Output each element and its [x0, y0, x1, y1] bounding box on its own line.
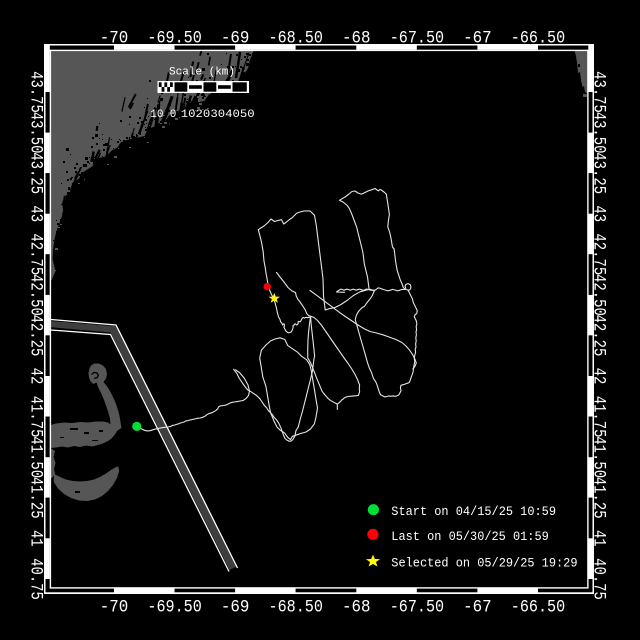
svg-text:41.25: 41.25 [26, 477, 46, 519]
svg-text:42.75: 42.75 [26, 233, 46, 275]
svg-text:41.75: 41.75 [589, 396, 609, 438]
svg-text:43.75: 43.75 [589, 71, 609, 113]
svg-text:-70: -70 [100, 29, 129, 49]
svg-text:40.75: 40.75 [589, 558, 609, 600]
svg-text:42: 42 [589, 368, 609, 385]
svg-text:41: 41 [589, 530, 609, 547]
svg-text:42.50: 42.50 [26, 274, 46, 316]
svg-text:43.75: 43.75 [26, 71, 46, 113]
svg-text:-68.50: -68.50 [269, 29, 323, 49]
svg-text:-69: -69 [221, 598, 250, 618]
svg-text:Scale (km): Scale (km) [169, 67, 235, 79]
svg-text:-69.50: -69.50 [147, 29, 201, 49]
svg-text:-66.50: -66.50 [511, 598, 565, 618]
svg-text:43: 43 [589, 205, 609, 222]
svg-text:43.50: 43.50 [589, 112, 609, 154]
svg-text:-67: -67 [463, 29, 492, 49]
svg-text:-68.50: -68.50 [269, 598, 323, 618]
svg-text:-66.50: -66.50 [511, 29, 565, 49]
svg-text:42.25: 42.25 [589, 315, 609, 357]
svg-text:42.50: 42.50 [589, 274, 609, 316]
svg-text:0: 0 [170, 109, 177, 121]
svg-text:41.50: 41.50 [589, 436, 609, 478]
svg-text:Last on 05/30/25 01:59: Last on 05/30/25 01:59 [391, 529, 549, 544]
svg-text:-67.50: -67.50 [390, 29, 444, 49]
svg-text:43.50: 43.50 [26, 112, 46, 154]
svg-text:10: 10 [150, 109, 163, 121]
svg-text:42.25: 42.25 [26, 315, 46, 357]
svg-text:42.75: 42.75 [589, 233, 609, 275]
svg-text:1020304050: 1020304050 [181, 109, 255, 121]
svg-text:-68: -68 [342, 29, 371, 49]
svg-text:-68: -68 [342, 598, 371, 618]
svg-text:-69.50: -69.50 [147, 598, 201, 618]
svg-text:42: 42 [26, 368, 46, 385]
svg-text:41: 41 [26, 530, 46, 547]
svg-text:41.25: 41.25 [589, 477, 609, 519]
svg-text:40.75: 40.75 [26, 558, 46, 600]
svg-text:41.50: 41.50 [26, 436, 46, 478]
svg-text:43.25: 43.25 [589, 152, 609, 194]
svg-text:-69: -69 [221, 29, 250, 49]
svg-text:Start on 04/15/25 10:59: Start on 04/15/25 10:59 [391, 504, 556, 519]
svg-text:43.25: 43.25 [26, 152, 46, 194]
svg-text:Selected on 05/29/25 19:29: Selected on 05/29/25 19:29 [391, 555, 577, 570]
svg-text:-67.50: -67.50 [390, 598, 444, 618]
svg-text:-67: -67 [463, 598, 492, 618]
svg-text:-70: -70 [100, 598, 129, 618]
svg-text:43: 43 [26, 205, 46, 222]
svg-text:41.75: 41.75 [26, 396, 46, 438]
